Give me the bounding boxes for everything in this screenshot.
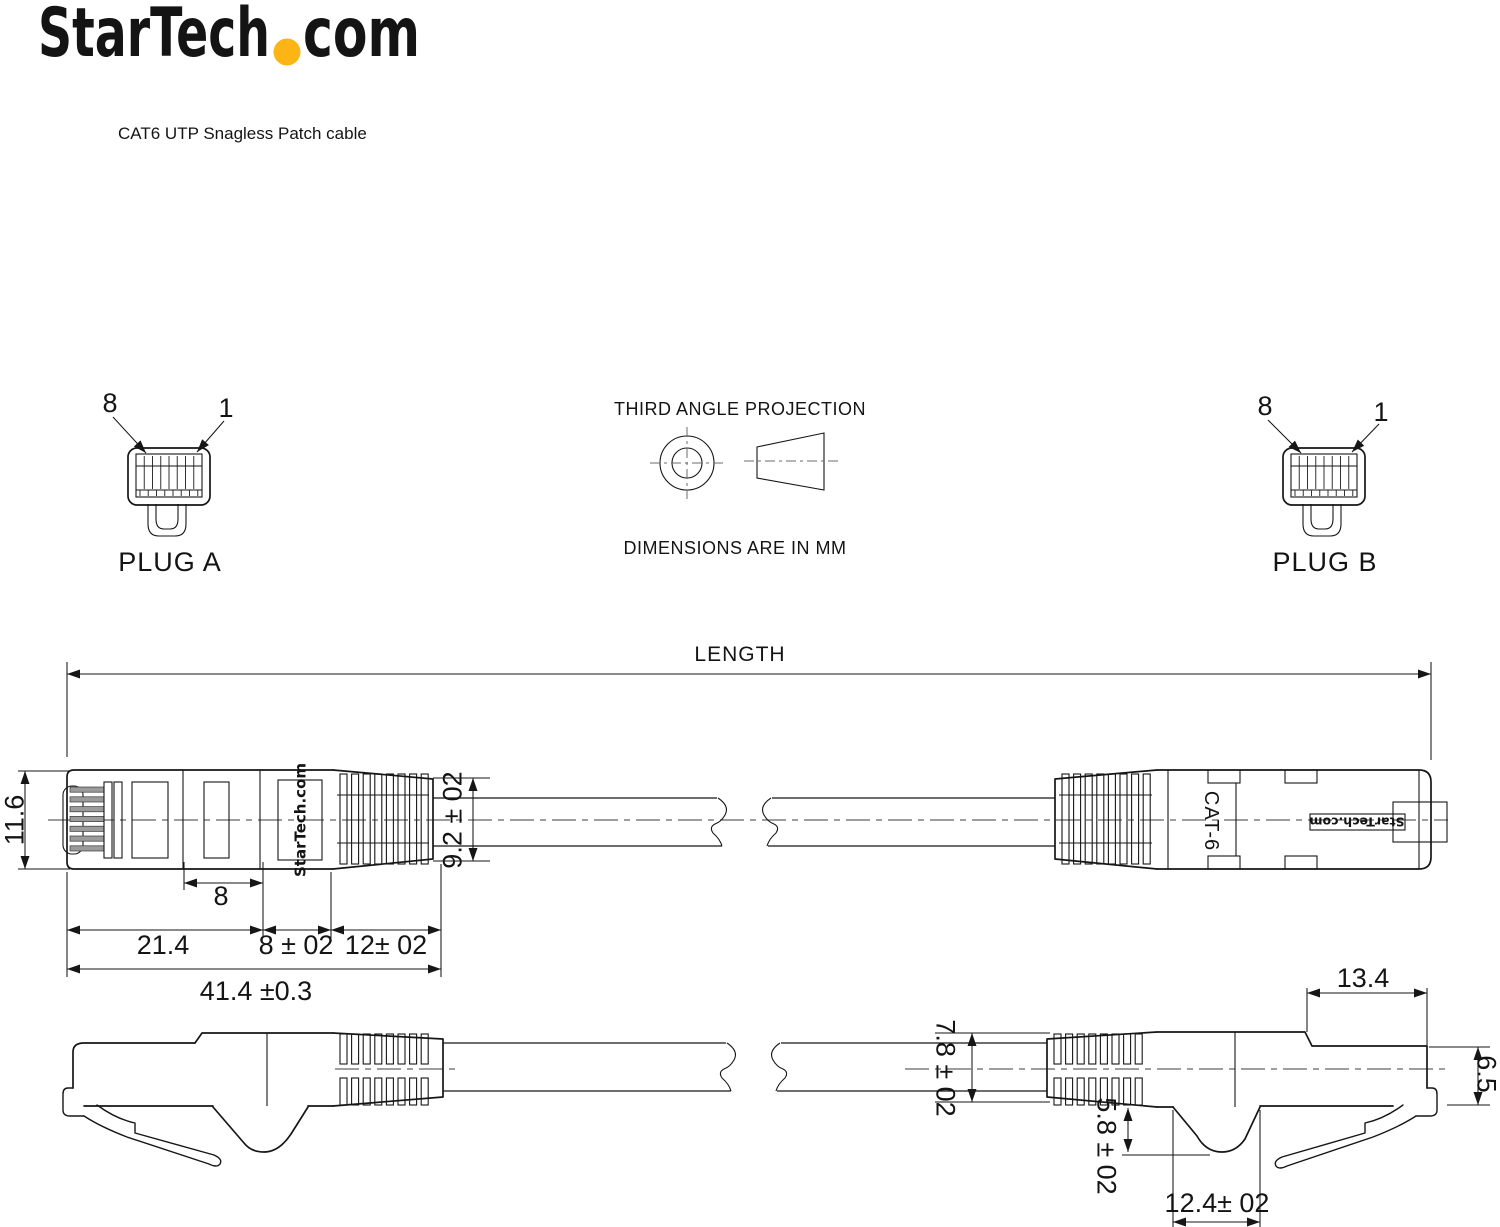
connector-body [73,1043,195,1088]
leader-pin1 [1352,424,1379,452]
rib [410,1078,417,1105]
rib [363,1034,370,1064]
connector-body [1157,1032,1427,1088]
svg-text:6.5: 6.5 [1472,1055,1500,1093]
cat6-marking: CAT-6 [1200,791,1222,851]
cable-side-view: StarTech.com CAT-6 StarT [0,763,1448,1006]
latch-lever [84,1105,221,1166]
rib [375,1078,382,1105]
rib [1135,1078,1142,1105]
projection-title: THIRD ANGLE PROJECTION [614,399,866,419]
rib [375,1034,382,1064]
rib [1112,1034,1119,1064]
plug-b-caption: PLUG B [1272,547,1377,577]
dim-nose-length: 13.4 [1307,963,1427,1046]
rib [398,774,405,864]
plug-a-pin-feet [140,490,198,496]
contact-blade [70,826,104,831]
boot-ribs [1062,774,1150,864]
rib [1120,774,1127,864]
contact-blade [70,836,104,841]
units-note: DIMENSIONS ARE IN MM [623,538,846,558]
plug-b-pin8-label: 8 [1257,391,1272,421]
plug-b-pins [1299,456,1349,489]
svg-text:9.2 ± 02: 9.2 ± 02 [437,771,467,868]
svg-text:8 ± 02: 8 ± 02 [259,930,334,960]
plug-b-pin1-label: 1 [1373,397,1388,427]
rib [340,1034,347,1064]
leader-pin8 [1268,420,1301,453]
rib [1108,774,1115,864]
leader-pin1 [197,421,224,452]
cable-break-line [711,798,726,846]
plug-b-cable-tab [1303,504,1341,536]
boxed-brand-marking: StarTech.com [1309,815,1404,830]
latch-lever [1275,1105,1416,1168]
contact-blade [70,807,104,812]
svg-text:13.4: 13.4 [1337,963,1390,993]
rib [398,1034,405,1064]
bottom-view-left-connector [63,1033,443,1166]
logo-suffix: com [303,0,420,73]
rib [363,774,370,864]
dim-body-length: 21.4 8 ± 02 12± 02 41.4 ±0.3 [67,862,441,1006]
svg-text:12.4± 02: 12.4± 02 [1165,1188,1270,1218]
rib [421,1078,428,1105]
third-angle-projection-symbol: THIRD ANGLE PROJECTION DIMENSIONS ARE IN… [614,399,866,558]
plug-b-front-view: 8 1 PLUG B [1257,391,1388,577]
rib [421,774,428,864]
rib [1066,1078,1073,1105]
length-dimension: LENGTH [67,643,1431,760]
rib [340,774,347,864]
svg-text:8: 8 [213,881,228,911]
rib [1089,1034,1096,1064]
length-label: LENGTH [694,643,785,666]
plug-a-front-view: 8 1 PLUG A [102,388,233,577]
rib [1124,1034,1131,1064]
rib [386,1034,393,1064]
leader-pin8 [113,417,146,453]
plug-b-pin-feet [1295,490,1353,496]
latch-hook [1416,1088,1437,1116]
rib [1132,774,1139,864]
rib [1135,1034,1142,1064]
plug-a-caption: PLUG A [118,547,222,577]
rib [1124,1078,1131,1105]
rib [410,774,417,864]
startech-logo: StarTech com [38,0,420,73]
rib [352,1078,359,1105]
rib [352,1034,359,1064]
dim-hump-length: 12.4± 02 [1165,1110,1270,1227]
technical-drawing: StarTech com CAT6 UTP Snagless Patch cab… [0,0,1500,1227]
plug-a-pin8-label: 8 [102,388,117,418]
contact-blade [70,846,104,851]
dim-latch-depth: 5.8 ± 02 [1092,1097,1210,1194]
rib [410,1034,417,1064]
svg-text:21.4: 21.4 [137,930,190,960]
rib [1077,1034,1084,1064]
dim-nose-height: 6.5 [1429,1047,1500,1105]
drawing-subtitle: CAT6 UTP Snagless Patch cable [118,124,367,143]
contact-blade [70,787,104,792]
rib [1100,1034,1107,1064]
boot-ribs [340,774,428,864]
side-brand-marking: StarTech.com [291,763,309,877]
cable-break-line [763,798,778,846]
drawing-page: StarTech com CAT6 UTP Snagless Patch cab… [0,0,1500,1227]
contact-blades [70,787,104,851]
rib [1143,774,1150,864]
svg-text:12± 02: 12± 02 [345,930,427,960]
latch-hook [63,1088,84,1116]
rib [375,774,382,864]
contact-blade [70,797,104,802]
svg-text:5.8 ± 02: 5.8 ± 02 [1092,1097,1122,1194]
plug-a-pins [144,456,194,489]
rib [1054,1078,1061,1105]
svg-text:7.8 ± 02: 7.8 ± 02 [931,1019,961,1116]
cable-break-line [720,1043,735,1091]
rib [340,1078,347,1105]
contact-blade [70,816,104,821]
dim-cable-od: 7.8 ± 02 [931,1019,1050,1116]
rib [363,1078,370,1105]
rib [1085,774,1092,864]
svg-text:11.6: 11.6 [0,795,29,846]
svg-text:41.4 ±0.3: 41.4 ±0.3 [200,976,312,1006]
snagless-hump [1173,1107,1260,1152]
plug-a-pin1-label: 1 [218,393,233,423]
rib [1062,774,1069,864]
rib [386,774,393,864]
rib [1097,774,1104,864]
rib [352,774,359,864]
plug-a-cable-tab [148,504,186,536]
rib [1074,774,1081,864]
cable-break-line [772,1043,787,1091]
snagless-hump [213,1107,308,1152]
logo-text: StarTech [38,0,270,73]
logo-dot-icon [274,39,301,66]
